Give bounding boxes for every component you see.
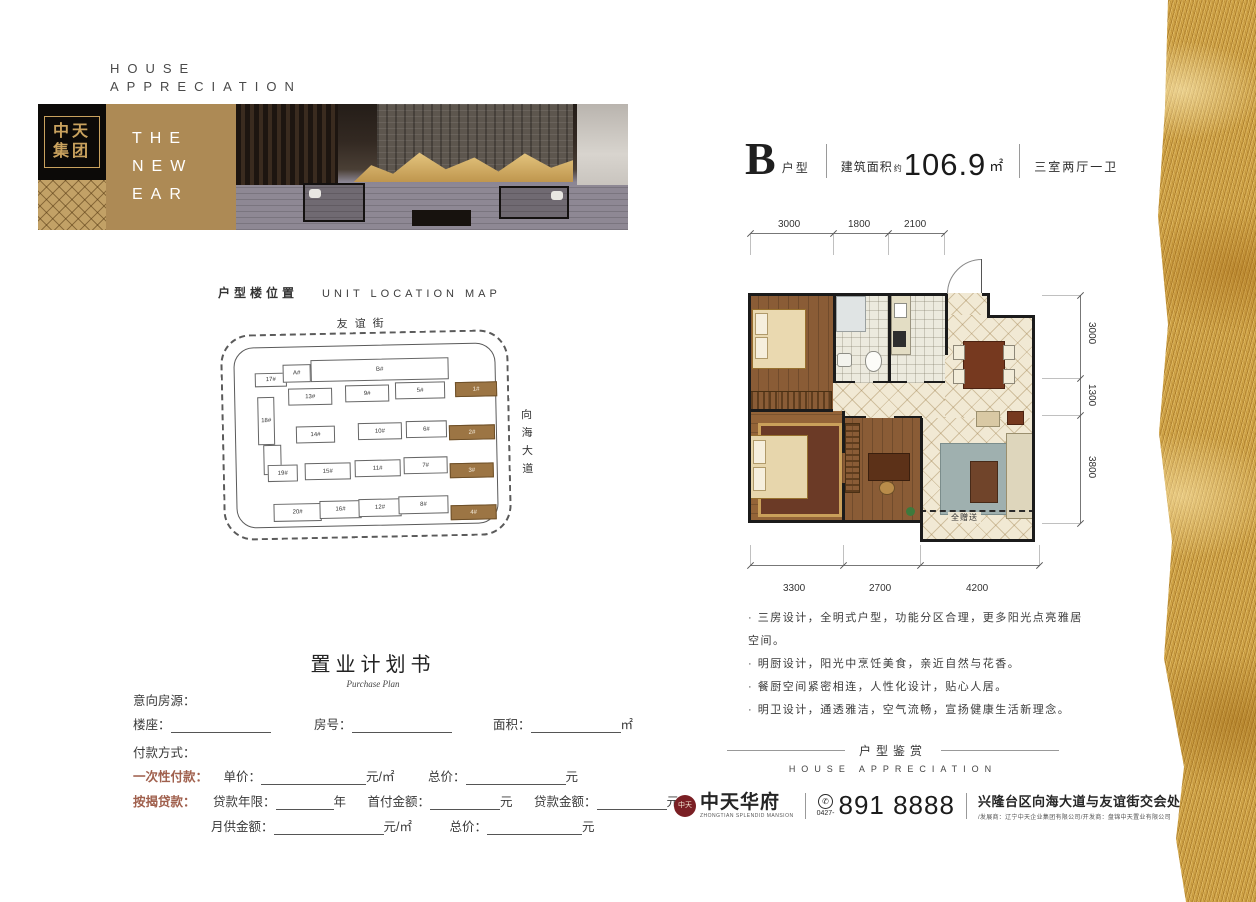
- bookshelf: [845, 423, 860, 493]
- unit-letter: B: [745, 140, 776, 178]
- map-building-8: 8#: [398, 495, 448, 514]
- unit-price-label: 单价：: [224, 770, 262, 784]
- zhongtian-group-logo: 中天 集团: [38, 104, 106, 180]
- building-label: 楼座：: [133, 718, 171, 732]
- stove: [893, 331, 906, 347]
- tagline-line1: THE: [132, 125, 236, 153]
- map-title-cn: 户型楼位置: [218, 284, 298, 301]
- yuan-unit: 元: [566, 770, 579, 784]
- dim-right-3: 3800: [1086, 456, 1097, 478]
- down-payment-field: [430, 796, 500, 810]
- building-field: [171, 719, 271, 733]
- dim-line-top: [750, 233, 945, 234]
- purchase-plan-heading: 置业计划书 Purchase Plan: [238, 648, 508, 689]
- map-building-1: 1#: [455, 381, 497, 397]
- lattice-pattern-icon: [38, 180, 106, 230]
- photo-sofa-left: [303, 183, 366, 222]
- footer: 中天 中天华府 ZHONGTIAN SPLENDID MANSION ✆ 042…: [674, 790, 1180, 821]
- map-building-11: 11#: [355, 459, 401, 477]
- bullet-2: 明厨设计，阳光中烹饪美食，亲近自然与花香。: [748, 653, 1088, 676]
- phone-icon: ✆: [818, 794, 833, 809]
- tagline-line3: EAR: [132, 181, 236, 209]
- total-label: 总价：: [428, 770, 466, 784]
- developers-line: /发展商：辽宁中天企业集团有限公司/开发商：盘锦中天置业有限公司: [978, 812, 1181, 821]
- map-building-A: A#: [283, 364, 311, 383]
- plant: [906, 507, 915, 516]
- map-building-B: B#: [310, 357, 448, 382]
- map-building-10: 10#: [358, 422, 402, 440]
- pillow: [755, 313, 768, 335]
- map-building-13: 13#: [288, 388, 332, 406]
- area-prefix: 建筑面积: [841, 158, 893, 175]
- map-building-15: 15#: [305, 462, 351, 480]
- payment-label: 付款方式：: [133, 746, 196, 760]
- pillow: [753, 467, 766, 491]
- total2-field: [487, 821, 582, 835]
- total-field: [466, 771, 566, 785]
- purchase-plan-subtitle: Purchase Plan: [238, 679, 508, 689]
- map-building-14: 14#: [296, 426, 335, 444]
- map-building-19: 19#: [268, 464, 298, 482]
- phone-area-code: 0427-: [817, 810, 835, 817]
- dim-top-2: 1800: [848, 219, 870, 230]
- appreciation-cn: 户型鉴赏: [859, 742, 927, 759]
- form-row-unit: 楼座： 房号： 面积：㎡: [133, 714, 633, 733]
- chair: [953, 369, 965, 384]
- map-building-16: 16#: [319, 500, 361, 519]
- area-field: [531, 719, 621, 733]
- desk: [868, 453, 910, 481]
- dim-right-2: 1300: [1086, 384, 1097, 406]
- dining-table: [963, 341, 1005, 389]
- logo-text-1: 中天: [53, 122, 91, 142]
- map-building-4: 4#: [450, 504, 496, 520]
- photo-wood-slats: [236, 104, 338, 185]
- appreciation-en: HOUSE APPRECIATION: [727, 764, 1059, 774]
- mortgage-label: 按揭贷款：: [133, 795, 196, 809]
- phone-block: ✆ 0427- 891 8888: [817, 790, 955, 821]
- divider-line: [727, 750, 845, 751]
- unit-price-field: [261, 771, 366, 785]
- kitchen-sink: [894, 303, 907, 318]
- map-building-12: 12#: [358, 498, 401, 517]
- loan-field: [597, 796, 667, 810]
- chair: [953, 345, 965, 360]
- coffee-table: [970, 461, 998, 503]
- divider: [1019, 144, 1020, 178]
- page-header: HOUSE APPRECIATION: [110, 60, 302, 96]
- brand-block: 中天 中天华府 ZHONGTIAN SPLENDID MANSION: [674, 793, 794, 819]
- brand-banner: 中天 集团 THE NEW EAR: [38, 104, 628, 230]
- area-label: 面积：: [493, 718, 531, 732]
- dim-bottom-2: 2700: [869, 583, 891, 594]
- appreciation-section: 户型鉴赏 HOUSE APPRECIATION: [727, 742, 1059, 774]
- purchase-plan-title: 置业计划书: [238, 648, 508, 677]
- address-line: 兴隆台区向海大道与友谊街交会处: [978, 791, 1181, 810]
- per-unit: 元/㎡: [366, 770, 394, 784]
- courtyard-photo: [236, 104, 628, 230]
- dim-line-bottom: [750, 565, 1040, 566]
- sofa: [1006, 433, 1034, 519]
- room-label: 房号：: [314, 718, 352, 732]
- map-title-en: UNIT LOCATION MAP: [322, 288, 501, 300]
- years-label: 贷款年限：: [213, 795, 276, 809]
- bullet-3: 餐厨空间紧密相连，人性化设计，贴心人居。: [748, 676, 1088, 699]
- armchair: [976, 411, 1000, 427]
- dim-right-1: 3000: [1086, 322, 1097, 344]
- phone-number: 891 8888: [838, 790, 954, 821]
- header-line1: HOUSE: [110, 60, 302, 78]
- photo-coffee-table: [412, 210, 471, 226]
- unit-feature-bullets: 三房设计，全明式户型，功能分区合理，更多阳光点亮雅居空间。 明厨设计，阳光中烹饪…: [748, 607, 1088, 722]
- sink: [837, 353, 852, 367]
- floor-plan: 全赠送: [748, 293, 1036, 542]
- divider: [826, 144, 827, 178]
- map-building-2: 2#: [449, 424, 495, 440]
- footer-divider: [966, 793, 967, 819]
- yuan-unit4: 元: [582, 820, 595, 834]
- desk-chair: [879, 481, 895, 495]
- area-approx: 约: [894, 163, 902, 174]
- dim-line-right: [1080, 295, 1081, 523]
- per-unit2: 元/㎡: [384, 820, 412, 834]
- dim-bottom-3: 4200: [966, 583, 988, 594]
- room-entry: [945, 293, 987, 317]
- tagline-block: THE NEW EAR: [106, 104, 236, 230]
- unit-rooms-label: 三室两厅一卫: [1034, 158, 1118, 175]
- street-label-top: 友谊街: [336, 314, 390, 331]
- years-unit: 年: [334, 795, 347, 809]
- unit-header: B 户型 建筑面积 约 106.9 ㎡ 三室两厅一卫: [745, 140, 1118, 178]
- map-building-7: 7#: [403, 456, 447, 474]
- monthly-label: 月供金额：: [211, 820, 274, 834]
- yuan-unit2: 元: [500, 795, 513, 809]
- gold-texture-strip: [1156, 0, 1256, 902]
- form-row-monthly: 月供金额：元/㎡ 总价：元: [211, 816, 595, 835]
- form-row-intent: 意向房源：: [133, 690, 196, 709]
- address-block: 兴隆台区向海大道与友谊街交会处 /发展商：辽宁中天企业集团有限公司/开发商：盘锦…: [978, 791, 1181, 821]
- map-buildings: 17#A#B#1#13#9#5#18#14#10#6#2#19#15#11#7#…: [236, 343, 498, 527]
- dim-top-3: 2100: [904, 219, 926, 230]
- pillow: [753, 440, 766, 464]
- down-payment-label: 首付金额：: [368, 795, 431, 809]
- location-map-title: 户型楼位置 UNIT LOCATION MAP: [218, 284, 501, 301]
- site-map: 友谊街 向海大道 17#A#B#1#13#9#5#18#14#10#6#2#19…: [220, 329, 512, 541]
- brand-name: 中天华府: [700, 793, 794, 812]
- shower: [836, 296, 866, 332]
- form-row-payment: 付款方式：: [133, 742, 196, 761]
- chair: [1003, 369, 1015, 384]
- tagline-line2: NEW: [132, 153, 236, 181]
- logo-text-2: 集团: [53, 142, 91, 162]
- intent-label: 意向房源：: [133, 694, 196, 708]
- wardrobe: [750, 391, 832, 410]
- bullet-1: 三房设计，全明式户型，功能分区合理，更多阳光点亮雅居空间。: [748, 607, 1088, 653]
- bullet-4: 明卫设计，通透雅洁，空气流畅，宣扬健康生活新理念。: [748, 699, 1088, 722]
- map-building-18: 18#: [257, 397, 275, 445]
- entry-door-leaf: [981, 259, 982, 293]
- map-building-20: 20#: [273, 503, 321, 522]
- divider-line: [941, 750, 1059, 751]
- group-logo: 中天 集团: [38, 104, 106, 230]
- brand-seal-icon: 中天: [674, 795, 696, 817]
- toilet: [865, 351, 882, 372]
- header-line2: APPRECIATION: [110, 78, 302, 96]
- loan-label: 贷款金额：: [534, 795, 597, 809]
- monthly-field: [274, 821, 384, 835]
- dim-bottom-1: 3300: [783, 583, 805, 594]
- pillow: [755, 337, 768, 359]
- room-field: [352, 719, 452, 733]
- gift-area-label: 全赠送: [948, 512, 981, 523]
- map-building-5: 5#: [395, 381, 445, 399]
- years-field: [276, 796, 334, 810]
- map-building-9: 9#: [345, 385, 389, 403]
- map-building-6: 6#: [406, 420, 447, 438]
- unit-type-label: 户型: [782, 159, 810, 176]
- chair: [1003, 345, 1015, 360]
- lump-sum-label: 一次性付款：: [133, 770, 208, 784]
- area-unit: ㎡: [621, 718, 634, 732]
- area-unit-label: ㎡: [989, 156, 1003, 176]
- footer-divider: [805, 793, 806, 819]
- brand-subtitle: ZHONGTIAN SPLENDID MANSION: [700, 813, 794, 819]
- form-row-mortgage: 按揭贷款： 贷款年限：年 首付金额：元 贷款金额：元: [133, 791, 679, 810]
- room-hall: [833, 383, 945, 418]
- side-table: [1007, 411, 1024, 425]
- photo-sofa-right: [499, 186, 570, 219]
- brochure-page: HOUSE APPRECIATION 中天 集团 THE NEW EAR: [0, 0, 1256, 902]
- total2-label: 总价：: [449, 820, 487, 834]
- street-label-right: 向海大道: [517, 408, 535, 480]
- area-value: 106.9: [904, 152, 987, 178]
- form-row-lump: 一次性付款： 单价：元/㎡ 总价：元: [133, 766, 578, 785]
- dim-top-1: 3000: [778, 219, 800, 230]
- map-building-3: 3#: [450, 462, 494, 478]
